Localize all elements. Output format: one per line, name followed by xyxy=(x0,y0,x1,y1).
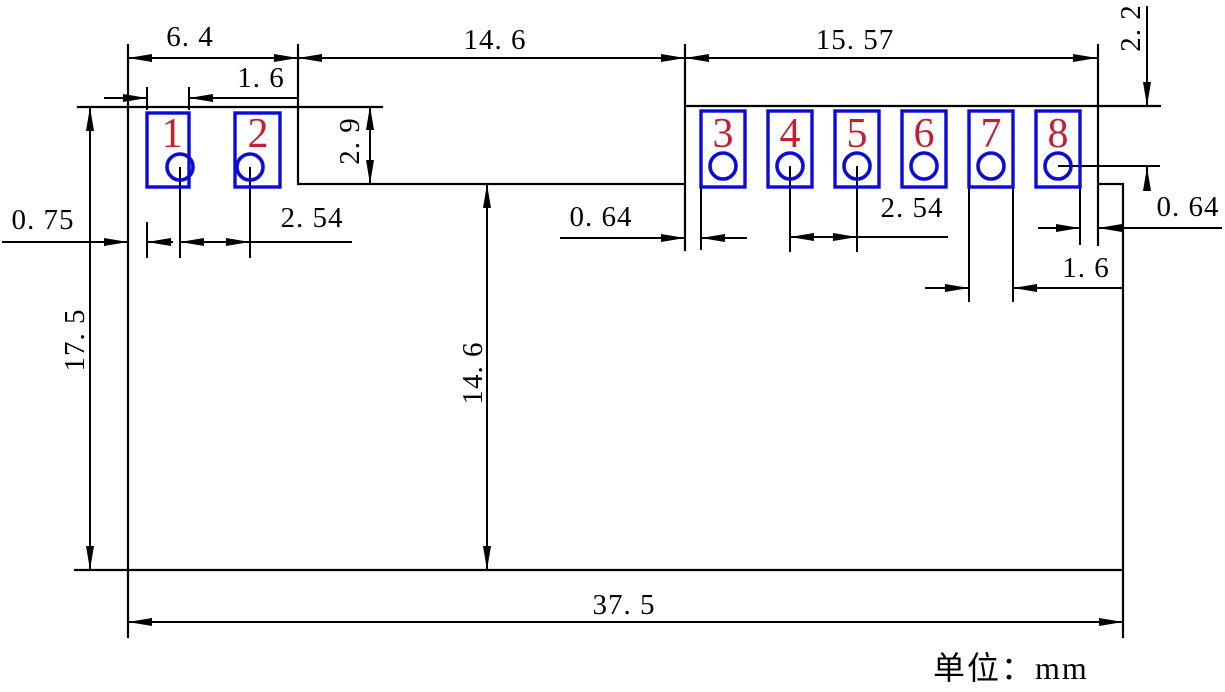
dim-label-0-75: 0. 75 xyxy=(12,204,75,236)
pad-6: 6 xyxy=(902,111,946,187)
dim-label-2-2: 2. 2 xyxy=(1115,4,1147,52)
dim-label-17-5: 17. 5 xyxy=(59,309,91,372)
dimension-lines xyxy=(2,6,1222,622)
pad-4-number: 4 xyxy=(780,111,801,157)
drawing-canvas: 1 2 3 4 5 6 7 xyxy=(0,0,1225,692)
dim-label-1-6-left: 1. 6 xyxy=(237,62,285,94)
dim-label-0-64-mid: 0. 64 xyxy=(570,201,633,233)
pad-2: 2 xyxy=(235,111,280,187)
dim-label-14-6-top: 14. 6 xyxy=(464,24,527,56)
pad-2-number: 2 xyxy=(248,111,269,157)
unit-label: 单位：mm xyxy=(933,650,1089,686)
pad-6-number: 6 xyxy=(914,111,935,157)
pad-5-number: 5 xyxy=(847,111,868,157)
dim-label-14-6-mid: 14. 6 xyxy=(457,342,489,405)
dim-label-2-54-left: 2. 54 xyxy=(281,202,344,234)
dim-label-2-9: 2. 9 xyxy=(334,117,366,165)
dim-label-2-54-right: 2. 54 xyxy=(881,192,944,224)
pad-8-number: 8 xyxy=(1048,111,1069,157)
dim-label-6-4: 6. 4 xyxy=(166,21,214,53)
dim-label-37-5: 37. 5 xyxy=(593,589,656,621)
dim-label-0-64-right: 0. 64 xyxy=(1157,191,1220,223)
pad-3: 3 xyxy=(701,111,745,187)
pad-7-number: 7 xyxy=(981,111,1002,157)
pad-1-number: 1 xyxy=(162,111,183,157)
dim-label-1-6-right: 1. 6 xyxy=(1062,252,1110,284)
dim-label-15-57: 15. 57 xyxy=(816,24,895,56)
dimension-drawing: 1 2 3 4 5 6 7 xyxy=(0,0,1225,692)
dimension-labels: 6. 4 1. 6 14. 6 15. 57 2. 2 0. 75 2. 54 … xyxy=(12,4,1220,621)
pad-1: 1 xyxy=(147,111,193,187)
pad-7: 7 xyxy=(969,111,1013,187)
pad-8: 8 xyxy=(1036,111,1080,187)
pad-3-number: 3 xyxy=(713,111,734,157)
pads: 1 2 3 4 5 6 7 xyxy=(147,111,1080,187)
